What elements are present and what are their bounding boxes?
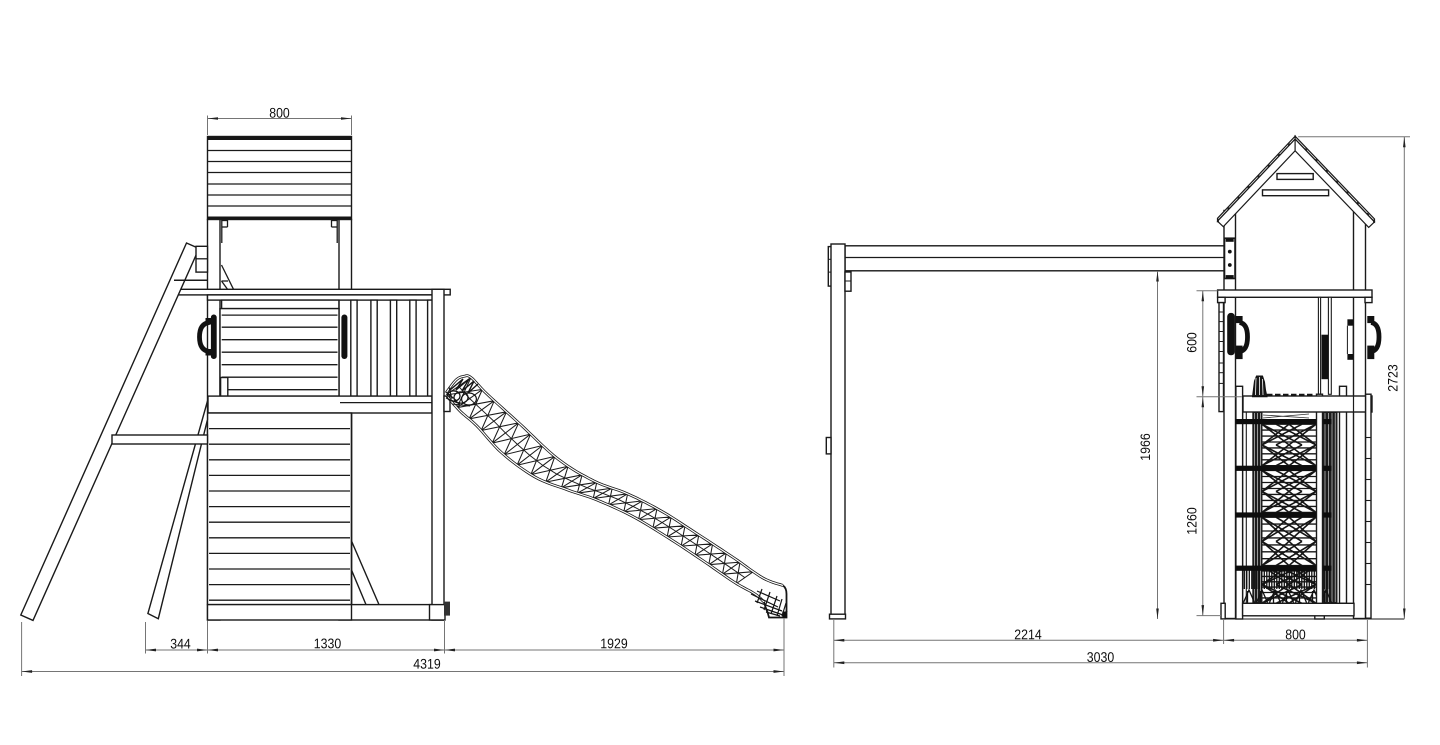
svg-text:800: 800 [269, 105, 290, 121]
svg-text:2723: 2723 [1385, 364, 1401, 392]
svg-text:1260: 1260 [1184, 507, 1200, 535]
svg-text:344: 344 [170, 635, 191, 651]
svg-text:1330: 1330 [314, 635, 342, 651]
svg-text:3030: 3030 [1087, 649, 1115, 665]
svg-text:1966: 1966 [1137, 433, 1153, 461]
svg-text:600: 600 [1184, 332, 1200, 353]
svg-text:2214: 2214 [1014, 626, 1042, 642]
svg-text:1929: 1929 [600, 635, 628, 651]
svg-text:800: 800 [1285, 626, 1306, 642]
svg-text:4319: 4319 [413, 656, 441, 672]
